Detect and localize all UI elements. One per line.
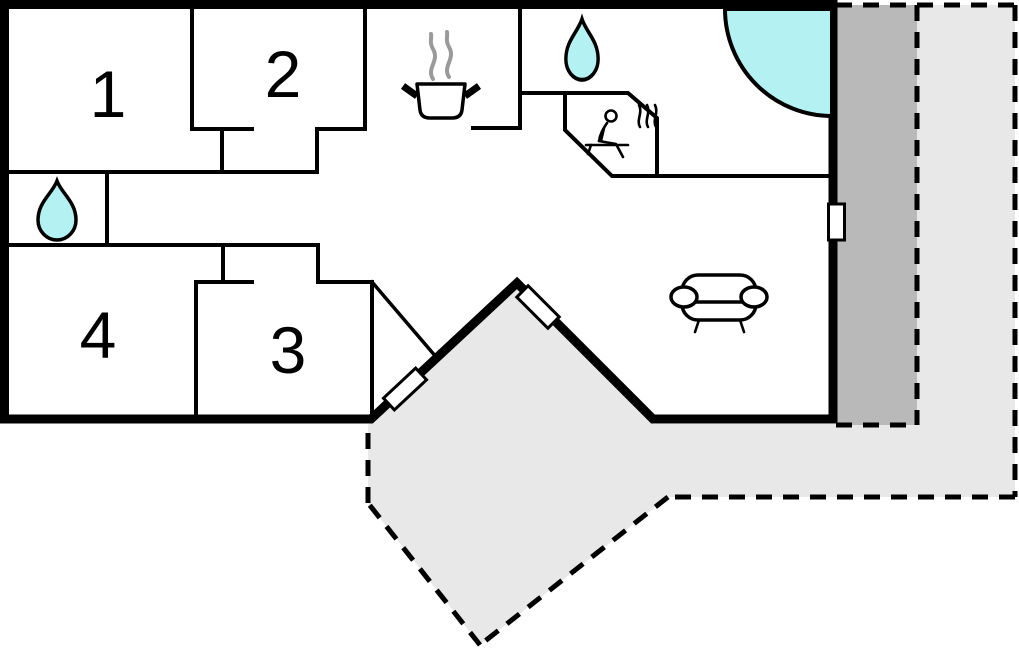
house-outline	[5, 5, 834, 420]
room-4-label: 4	[80, 298, 117, 372]
room-1-label: 1	[90, 57, 127, 131]
room-2-label: 2	[265, 37, 302, 111]
deck-dark	[836, 5, 917, 425]
sauna-steam	[655, 105, 657, 127]
sauna-steam	[639, 105, 641, 127]
floor-plan: 1 2 3 4	[0, 0, 1019, 652]
sauna-steam	[647, 105, 649, 127]
room-3-label: 3	[270, 313, 307, 387]
door-marker-right-wall	[829, 204, 845, 240]
pot-body	[417, 84, 465, 118]
floor-plan-svg: 1 2 3 4	[0, 0, 1019, 652]
